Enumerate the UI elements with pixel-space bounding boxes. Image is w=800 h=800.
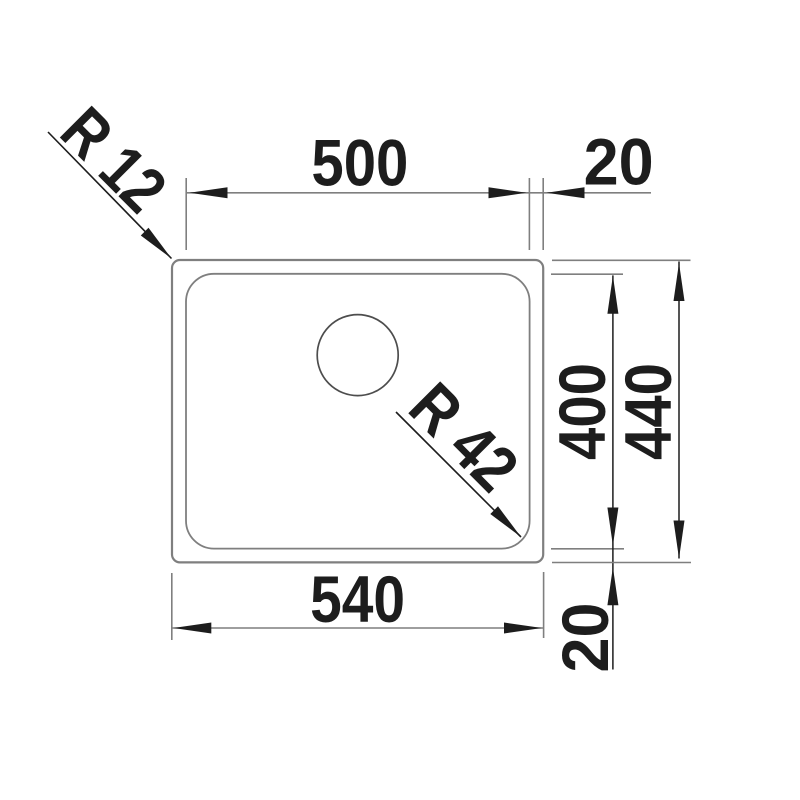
svg-text:20: 20 bbox=[549, 603, 622, 673]
svg-text:540: 540 bbox=[310, 563, 405, 636]
svg-text:440: 440 bbox=[612, 363, 685, 460]
svg-text:400: 400 bbox=[546, 363, 619, 460]
svg-text:20: 20 bbox=[584, 126, 654, 199]
svg-text:500: 500 bbox=[311, 127, 408, 200]
